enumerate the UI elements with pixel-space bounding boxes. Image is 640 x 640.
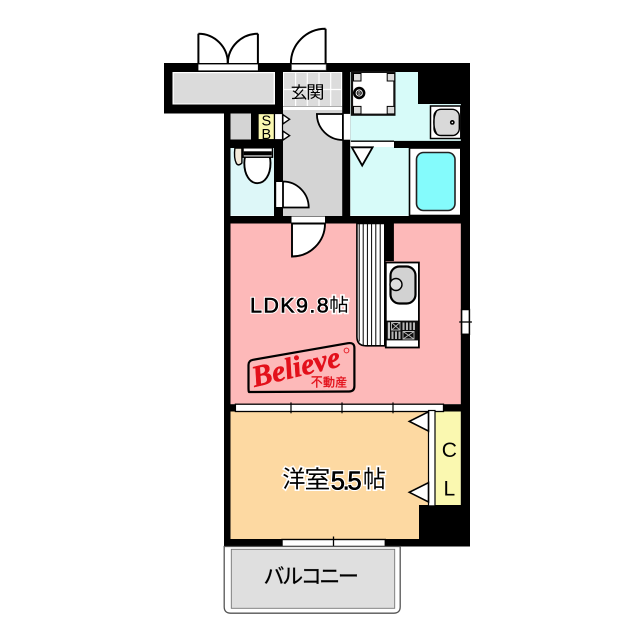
svg-text:B: B (261, 127, 271, 143)
svg-text:5.5: 5.5 (331, 468, 362, 496)
svg-text:LDK9.8: LDK9.8 (250, 293, 330, 317)
svg-text:L: L (443, 478, 455, 501)
svg-text:C: C (442, 439, 457, 462)
